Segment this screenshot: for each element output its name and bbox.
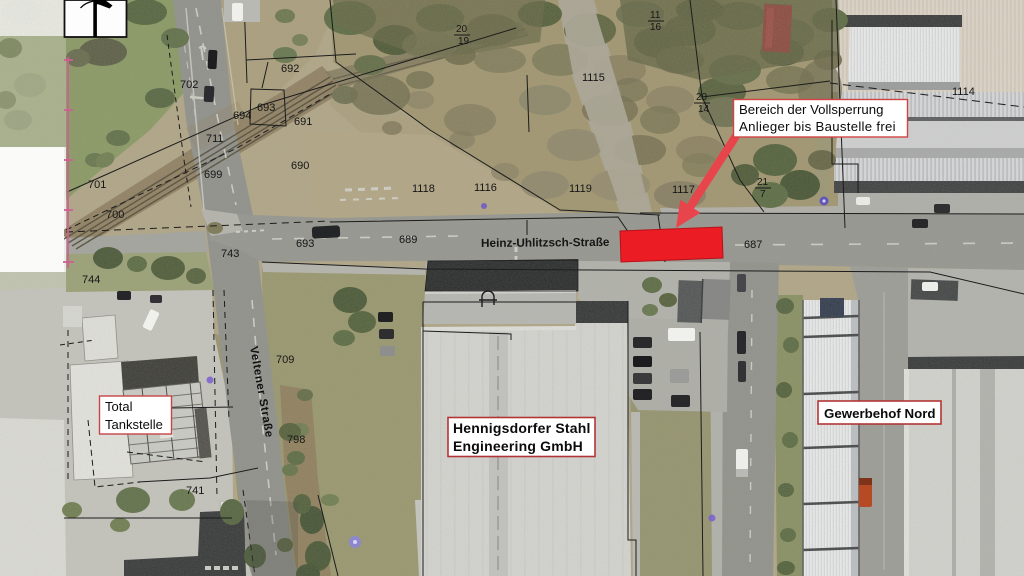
svg-text:690: 690 [291, 160, 309, 172]
svg-text:1116: 1116 [474, 182, 497, 194]
svg-text:Bereich der Vollsperrung: Bereich der Vollsperrung [739, 102, 883, 117]
svg-text:16: 16 [650, 22, 662, 33]
svg-text:692: 692 [281, 63, 299, 75]
svg-text:1114: 1114 [952, 86, 975, 98]
svg-text:699: 699 [204, 169, 222, 181]
svg-text:20: 20 [696, 92, 708, 103]
svg-text:7: 7 [760, 189, 766, 200]
svg-text:798: 798 [287, 434, 305, 446]
svg-text:1117: 1117 [672, 184, 695, 196]
svg-text:694: 694 [233, 110, 251, 122]
svg-text:11: 11 [650, 10, 661, 21]
svg-text:Total: Total [105, 399, 133, 414]
svg-text:711: 711 [206, 133, 224, 145]
svg-text:701: 701 [88, 179, 106, 191]
svg-text:Anlieger bis Baustelle frei: Anlieger bis Baustelle frei [739, 119, 896, 134]
svg-text:Tankstelle: Tankstelle [105, 417, 163, 432]
svg-text:14: 14 [698, 104, 710, 115]
svg-text:1115: 1115 [582, 72, 605, 84]
svg-text:744: 744 [82, 274, 100, 286]
svg-text:702: 702 [180, 79, 198, 91]
svg-text:21: 21 [757, 177, 769, 188]
svg-text:709: 709 [276, 354, 294, 366]
svg-text:693: 693 [296, 238, 314, 250]
svg-text:700: 700 [106, 209, 124, 221]
svg-text:741: 741 [186, 485, 204, 497]
svg-text:1119: 1119 [569, 183, 592, 195]
svg-text:20: 20 [456, 24, 468, 35]
svg-text:Gewerbehof Nord: Gewerbehof Nord [824, 406, 936, 421]
svg-text:691: 691 [294, 116, 312, 128]
svg-text:Hennigsdorfer Stahl: Hennigsdorfer Stahl [453, 420, 591, 436]
svg-text:687: 687 [744, 239, 762, 251]
svg-text:743: 743 [221, 248, 239, 260]
svg-text:Heinz-Uhlitzsch-Straße: Heinz-Uhlitzsch-Straße [481, 235, 610, 250]
svg-text:19: 19 [458, 36, 470, 47]
svg-text:Engineering GmbH: Engineering GmbH [453, 438, 583, 454]
svg-text:689: 689 [399, 234, 417, 246]
svg-text:1118: 1118 [412, 183, 435, 195]
svg-text:693: 693 [257, 102, 275, 114]
